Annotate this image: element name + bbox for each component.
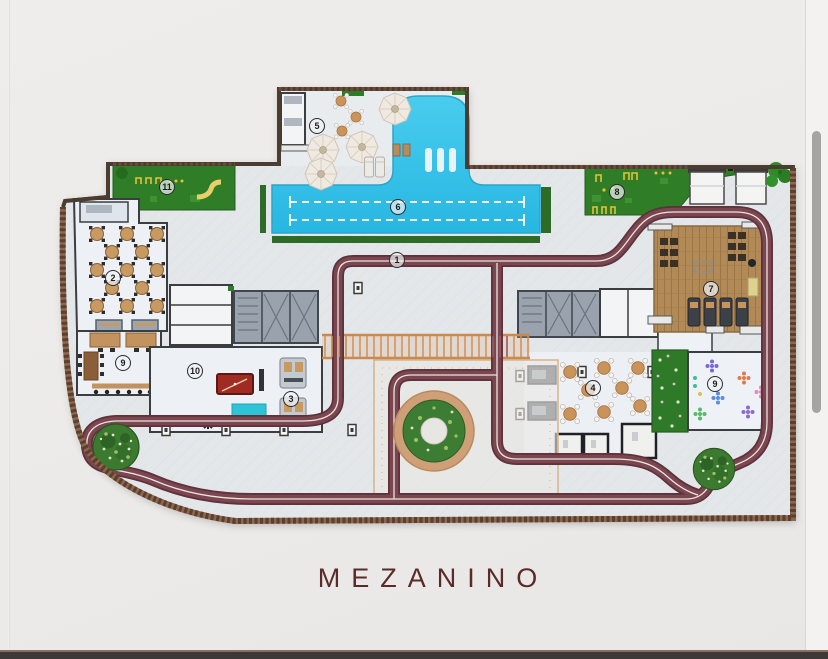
bollard [354, 283, 362, 294]
area-label-9: 9 [707, 376, 723, 392]
scrollbar-track[interactable] [805, 0, 828, 652]
flower-planter [652, 350, 688, 432]
area-label-8: 8 [609, 184, 625, 200]
wood-lounge-deck [648, 222, 768, 334]
area-label-6: 6 [390, 199, 406, 215]
area-label-7: 7 [703, 281, 719, 297]
hedge [260, 185, 266, 233]
page-left-edge [8, 0, 10, 652]
area-label-9: 9 [115, 355, 131, 371]
area-label-4: 4 [585, 380, 601, 396]
area-label-2: 2 [105, 270, 121, 286]
central-planter [394, 391, 474, 471]
hedge [272, 236, 540, 243]
pool-steps [425, 148, 456, 172]
hedge [541, 187, 551, 233]
area-label-11: 11 [159, 179, 175, 195]
bottom-edge-bar [0, 652, 828, 659]
bollard [348, 425, 356, 436]
floorplan-viewer: 12345678991011 MEZANINO [0, 0, 828, 659]
area-label-5: 5 [309, 118, 325, 134]
area-label-10: 10 [187, 363, 203, 379]
area-label-3: 3 [283, 391, 299, 407]
gym-machine [280, 358, 306, 388]
tree-icon [693, 448, 734, 489]
elevator-core-left [170, 285, 318, 345]
area-label-1: 1 [389, 252, 405, 268]
kids-play-area [688, 352, 768, 430]
floor-title: MEZANINO [318, 563, 549, 594]
scrollbar-thumb[interactable] [812, 131, 821, 413]
mezzanine-floorplan [0, 0, 828, 659]
